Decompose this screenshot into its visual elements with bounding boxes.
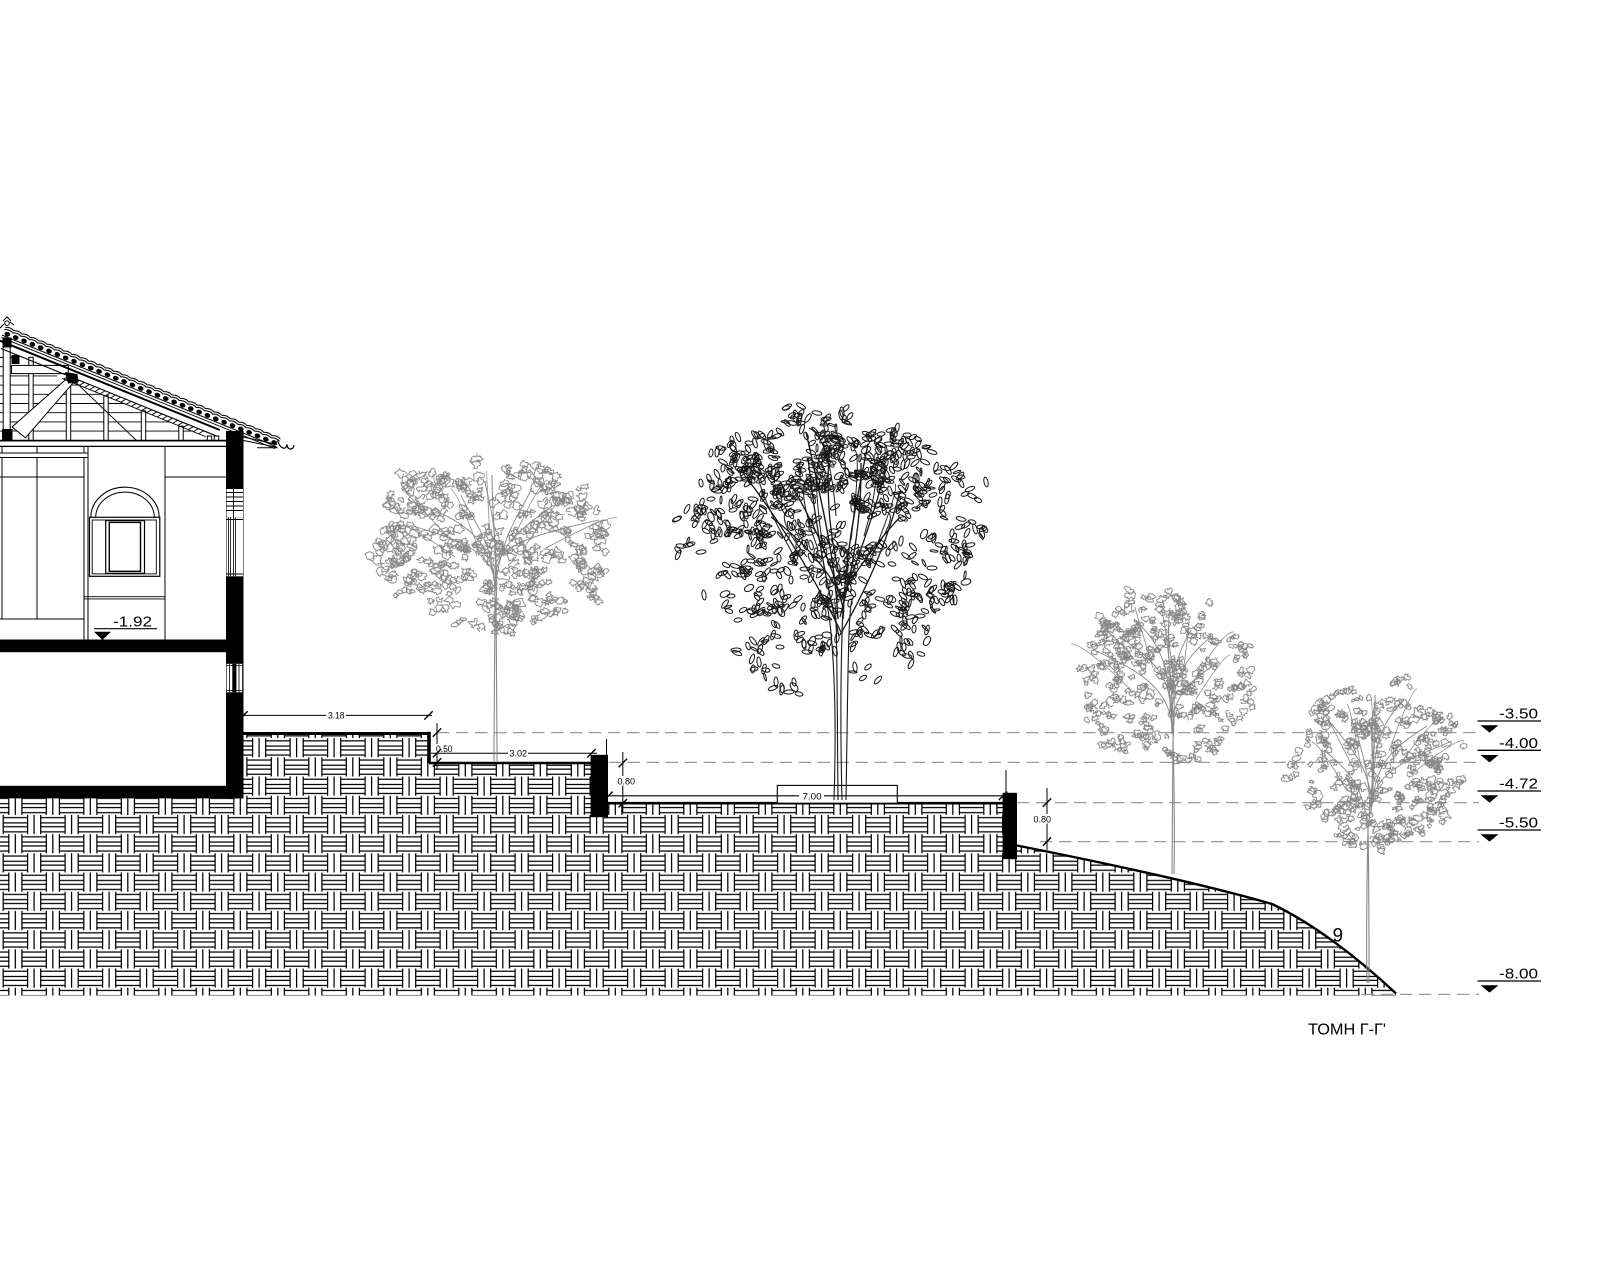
- svg-text:-3.50: -3.50: [1499, 706, 1538, 723]
- svg-text:0.80: 0.80: [1034, 815, 1052, 826]
- svg-text:3.02: 3.02: [510, 748, 528, 759]
- svg-text:7.00: 7.00: [803, 791, 822, 802]
- svg-text:-5.50: -5.50: [1499, 815, 1538, 832]
- svg-text:-8.00: -8.00: [1499, 966, 1538, 983]
- svg-text:9: 9: [1333, 926, 1344, 947]
- svg-text:3.18: 3.18: [328, 711, 345, 722]
- svg-text:ТОМН Г-Г': ТОМН Г-Г': [1308, 1022, 1386, 1039]
- svg-text:0.80: 0.80: [618, 776, 636, 787]
- svg-text:-4.00: -4.00: [1499, 735, 1538, 752]
- svg-text:-4.72: -4.72: [1499, 776, 1538, 793]
- svg-text:-1.92: -1.92: [113, 614, 152, 631]
